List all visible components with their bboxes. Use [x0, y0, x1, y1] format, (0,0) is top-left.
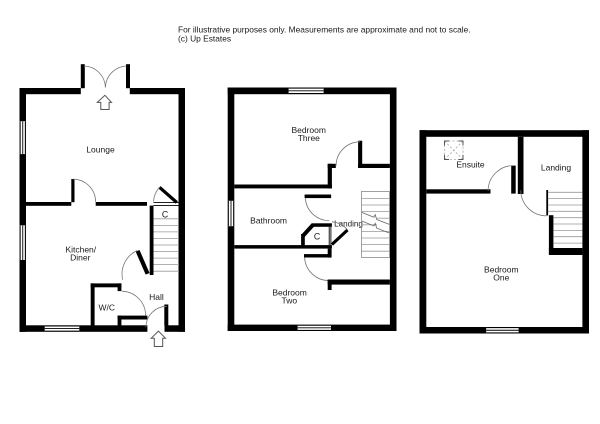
svg-text:Lounge: Lounge — [86, 145, 115, 155]
svg-text:(c) Up Estates: (c) Up Estates — [178, 34, 231, 44]
svg-text:Two: Two — [282, 295, 298, 305]
svg-text:Hall: Hall — [149, 292, 164, 302]
svg-text:C: C — [162, 210, 169, 220]
svg-text:W/C: W/C — [99, 302, 116, 312]
svg-text:Bathroom: Bathroom — [250, 215, 287, 225]
svg-text:Landing: Landing — [334, 220, 363, 229]
svg-text:Ensuite: Ensuite — [456, 160, 485, 170]
svg-text:Diner: Diner — [70, 253, 90, 263]
svg-text:One: One — [493, 273, 509, 283]
svg-text:Three: Three — [298, 133, 320, 143]
svg-text:C: C — [314, 232, 321, 242]
svg-text:Landing: Landing — [541, 163, 572, 173]
